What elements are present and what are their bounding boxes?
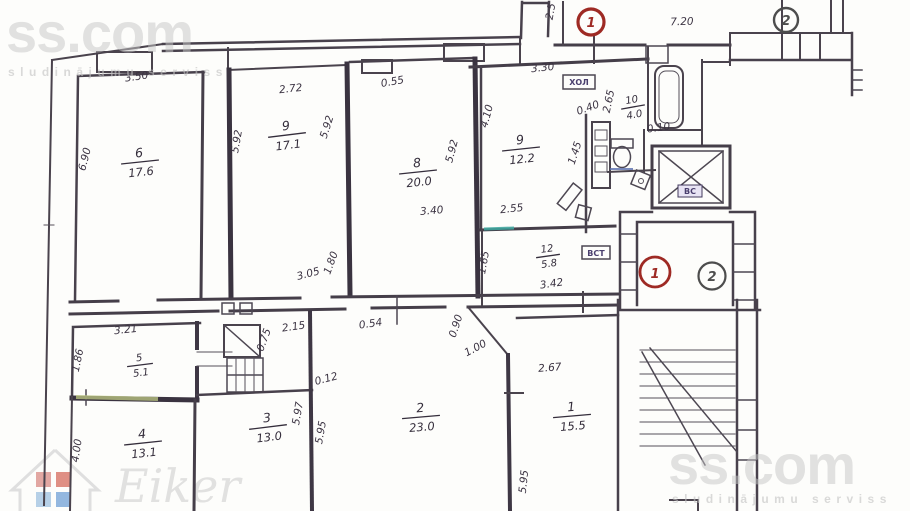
svg-text:13.1: 13.1 [131,445,158,462]
teal-mark [484,228,514,229]
room-label-4: 4 13.1 [122,424,163,462]
vst-label: ВСТ [587,249,605,258]
dim: 3.42 [539,276,564,291]
dim: 0.55 [380,74,405,90]
site-watermark-bottom: ss.com sludinājumu serviss [668,433,892,506]
svg-text:17.1: 17.1 [275,136,302,153]
site-watermark-brand: ss.com [6,1,193,64]
small-cabinet-icon [575,205,591,221]
site-watermark-top: ss.com sludinājumu serviss [6,1,228,79]
dim: 2.67 [538,361,562,375]
svg-text:9: 9 [515,132,525,148]
site-watermark-tagline: sludinājumu serviss [672,492,892,506]
svg-text:4: 4 [137,426,147,442]
dim: 7.20 [670,16,694,29]
svg-text:5.1: 5.1 [132,367,149,380]
room-labels: 6 17.6 9 17.1 8 20.0 9 12.2 10 4.0 12 5.… [119,93,647,462]
dim: 0.54 [358,316,383,331]
room-label-9b: 9 12.2 [500,130,541,168]
dim: 0.12 [313,370,339,388]
room-label-3: 3 13.0 [247,408,289,446]
dim: 2.15 [281,319,306,334]
dim: 0.10 [646,120,671,135]
svg-text:10: 10 [625,94,639,107]
dim: 5.95 [313,420,329,445]
room-label-9a: 9 17.1 [266,116,308,154]
dim: 0.90 [447,313,466,339]
dim: 0.75 [255,327,274,353]
dim: 3.05 [295,265,321,283]
hall-label: ХОЛ [569,78,589,87]
dim: 1.80 [322,250,341,276]
logo-square [56,472,71,487]
svg-text:12.2: 12.2 [509,151,536,168]
site-watermark-brand: ss.com [668,433,855,496]
marker-2-top-num: 2 [781,14,790,29]
dim: 5.92 [443,138,461,164]
marker-2-stair-num: 2 [707,270,716,285]
dim: 3.21 [113,323,138,337]
vs-label: ВС [684,187,696,196]
room-label-8: 8 20.0 [397,153,438,191]
site-watermark-tagline: sludinājumu serviss [8,65,228,79]
svg-text:23.0: 23.0 [409,419,436,435]
svg-text:13.0: 13.0 [256,428,283,445]
door-swing-box [646,46,668,63]
dim: 2.65 [601,88,618,114]
svg-text:5.8: 5.8 [541,258,558,271]
room-label-2: 2 23.0 [401,398,442,435]
house-logo-icon [12,450,98,511]
marker-1-top-num: 1 [586,16,595,31]
dim: 2.72 [278,82,303,96]
dim: 4.00 [69,438,84,463]
room-label-12: 12 5.8 [534,242,561,271]
agency-watermark: Eiker [12,450,243,511]
dim: 6.90 [76,146,93,172]
svg-text:12: 12 [540,243,554,256]
svg-text:4.0: 4.0 [626,109,644,123]
dim: 1.00 [462,337,489,359]
dim: 0.40 [575,98,601,117]
svg-text:2: 2 [416,400,425,416]
toilet-icon [614,147,631,168]
floorplan-scan: Eiker [0,0,910,511]
svg-text:17.6: 17.6 [128,164,155,181]
svg-text:9: 9 [281,118,291,134]
room-label-5: 5 5.1 [126,352,155,381]
bathtub-inner [659,71,679,123]
svg-text:6: 6 [134,145,144,161]
green-mark [76,397,158,399]
svg-text:8: 8 [412,155,422,171]
svg-text:3: 3 [262,410,272,426]
agency-watermark-text: Eiker [114,459,243,511]
dim: 5.92 [318,114,337,140]
logo-square [56,492,71,507]
dim: 3.40 [420,204,445,218]
room-label-1: 1 15.5 [552,397,593,434]
svg-text:5: 5 [135,353,143,365]
dim: 3.30 [530,61,555,75]
dim: 1.45 [566,140,585,166]
svg-text:20.0: 20.0 [406,174,433,191]
svg-text:1: 1 [567,399,576,415]
marker-1-stair-num: 1 [650,267,659,282]
sink-icon [631,170,651,190]
room-label-10: 10 4.0 [619,93,647,123]
dim: 5.97 [290,401,306,426]
dim: 5.95 [517,469,531,494]
dim: 2.5 [544,2,559,21]
svg-text:15.5: 15.5 [560,418,587,434]
dim: 2.55 [499,202,524,216]
room-label-6: 6 17.6 [119,143,160,181]
